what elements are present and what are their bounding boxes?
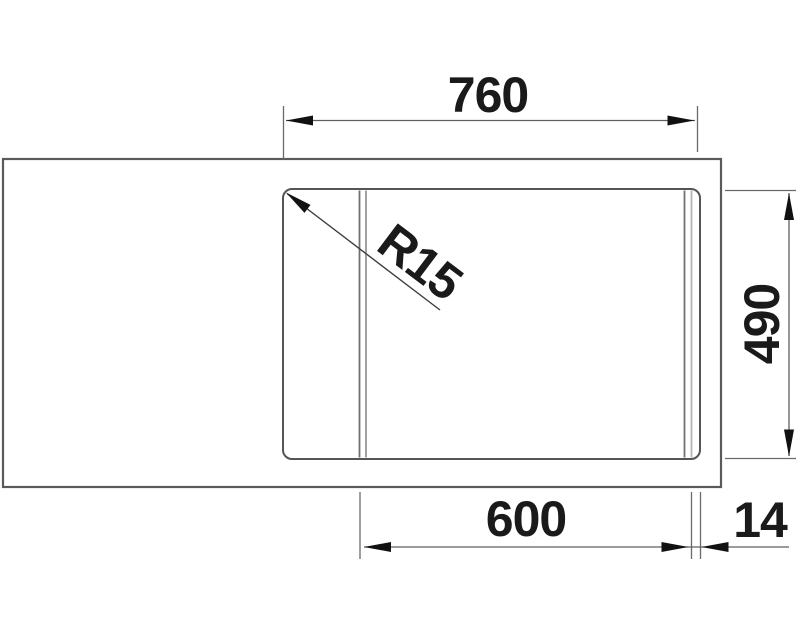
dimension-label-bowl-width: 600	[486, 494, 566, 544]
arrowhead-490-top	[784, 193, 794, 220]
dimension-label-depth: 490	[737, 284, 787, 364]
arrowhead-490-bottom	[784, 430, 794, 457]
drawing-linework	[0, 0, 800, 640]
arrowhead-760-right	[668, 116, 695, 126]
arrowhead-600-right	[662, 542, 689, 552]
arrowhead-600-left	[364, 542, 391, 552]
arrowhead-14-left	[702, 542, 729, 552]
dimension-label-rail-width: 14	[733, 495, 787, 545]
sink-outline-rect	[3, 159, 721, 487]
sink-dimension-drawing: 760 490 600 14 R15	[0, 0, 800, 640]
dimension-label-total-width: 760	[448, 70, 528, 120]
arrowhead-760-left	[286, 116, 313, 126]
